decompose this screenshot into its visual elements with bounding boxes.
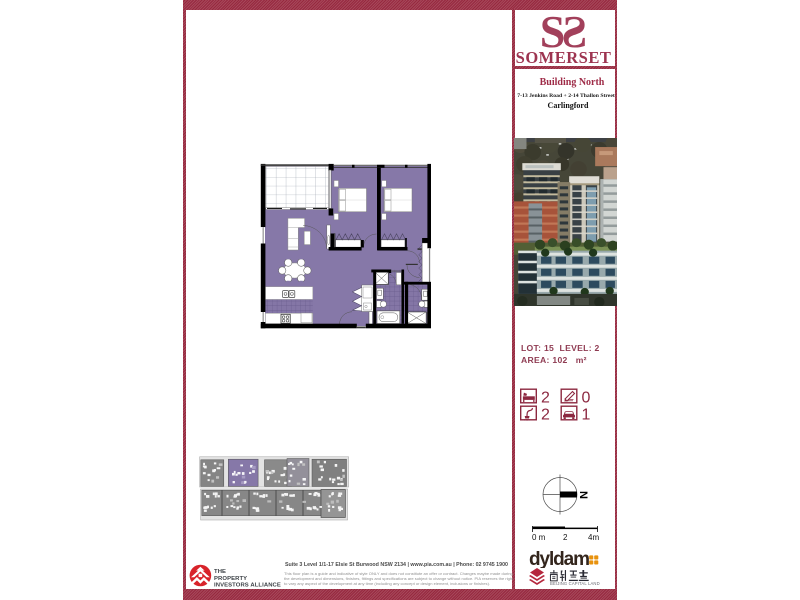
svg-text:S: S [562,10,588,48]
svg-text:S: S [540,10,566,48]
svg-text:THE: THE [214,569,226,575]
svg-text:PROPERTY: PROPERTY [214,576,247,582]
svg-text:INVESTORS ALLIANCE: INVESTORS ALLIANCE [214,583,281,588]
svg-text:BEIJING CAPITAL LAND: BEIJING CAPITAL LAND [550,581,600,586]
svg-text:4m: 4m [588,533,599,542]
svg-text:0 m: 0 m [532,533,546,542]
svg-text:0: 0 [582,390,591,407]
svg-text:2: 2 [563,533,568,542]
svg-text:N: N [577,491,589,499]
svg-text:2: 2 [541,390,550,407]
svg-text:2: 2 [541,407,550,423]
svg-text:dyldam: dyldam [529,549,589,568]
svg-text:1: 1 [582,407,591,423]
